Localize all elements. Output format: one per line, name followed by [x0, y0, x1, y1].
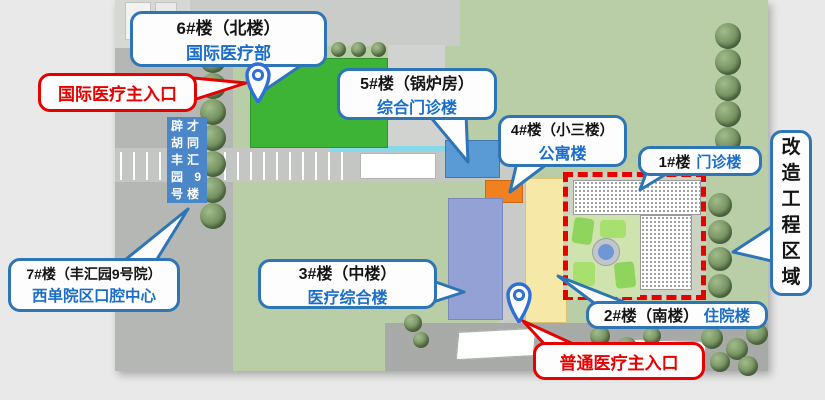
- building-1-outpatient-hatched: [573, 180, 701, 215]
- building-2-number: 2#楼（南楼）: [604, 304, 699, 326]
- callout-international-entrance: 国际医疗主入口: [38, 73, 197, 112]
- international-entrance-label: 国际医疗主入口: [58, 80, 177, 105]
- tree-icon: [200, 203, 226, 229]
- building-5-outpatient: [445, 140, 500, 178]
- renovation-char: 区: [781, 239, 800, 265]
- tree-icon: [738, 356, 758, 376]
- tree-icon: [710, 352, 730, 372]
- callout-building-4: 4#楼（小三楼） 公寓楼: [498, 115, 627, 167]
- building-4-number: 4#楼（小三楼）: [511, 119, 614, 140]
- general-entrance-label: 普通医疗主入口: [560, 349, 679, 374]
- parking-structure: [360, 153, 436, 179]
- building-2-name: 住院楼: [704, 304, 751, 326]
- tree-icon: [708, 193, 732, 217]
- address-row: 丰汇: [167, 152, 207, 169]
- tree-icon: [715, 23, 741, 49]
- tree-icon: [371, 42, 386, 57]
- building-1-number: 1#楼: [659, 151, 691, 172]
- tree-icon: [351, 42, 366, 57]
- garden-patch: [573, 262, 595, 286]
- general-entrance-pin-icon: [504, 281, 534, 323]
- tree-icon: [708, 220, 732, 244]
- tree-icon: [701, 327, 723, 349]
- callout-building-7: 7#楼（丰汇园9号院） 西单院区口腔中心: [8, 258, 180, 312]
- callout-general-entrance: 普通医疗主入口: [533, 342, 705, 380]
- campus-site-plan: 6#楼（北楼） 国际医疗部 国际医疗主入口 5#楼（锅炉房） 综合门诊楼 4#楼…: [0, 0, 825, 400]
- tree-icon: [413, 332, 429, 348]
- parking-stripes: [120, 152, 350, 180]
- address-plate: 辟才 胡同 丰汇 园 9 号楼: [167, 117, 207, 203]
- renovation-char: 程: [781, 213, 800, 239]
- tree-icon: [715, 49, 741, 75]
- tree-icon: [715, 101, 741, 127]
- address-row: 园 9: [167, 169, 207, 186]
- address-row: 号楼: [167, 186, 207, 203]
- garden-patch: [571, 217, 594, 246]
- callout-building-3: 3#楼（中楼） 医疗综合楼: [258, 259, 437, 309]
- building-hatched-east: [640, 215, 692, 290]
- building-3-number: 3#楼（中楼）: [299, 260, 397, 284]
- tree-icon: [715, 75, 741, 101]
- courtyard-garden: [568, 215, 640, 297]
- building-3-name: 医疗综合楼: [307, 284, 387, 308]
- building-6-number: 6#楼（北楼）: [177, 14, 281, 39]
- building-white-south-1: [456, 328, 536, 360]
- callout-renovation-zone: 改 造 工 程 区 域: [770, 130, 812, 296]
- building-3-medical: [448, 198, 503, 320]
- building-5-name: 综合门诊楼: [377, 94, 457, 118]
- garden-patch: [600, 220, 626, 238]
- tree-icon: [708, 247, 732, 271]
- building-1-name: 门诊楼: [696, 151, 741, 172]
- renovation-char: 改: [781, 135, 800, 161]
- tree-icon: [331, 42, 346, 57]
- address-row: 胡同: [167, 135, 207, 152]
- renovation-char: 工: [781, 187, 800, 213]
- garden-pond-water: [598, 244, 614, 260]
- callout-building-5: 5#楼（锅炉房） 综合门诊楼: [337, 68, 497, 120]
- callout-building-6: 6#楼（北楼） 国际医疗部: [130, 11, 327, 67]
- tree-icon: [708, 274, 732, 298]
- renovation-char: 造: [781, 161, 800, 187]
- callout-building-1: 1#楼 门诊楼: [638, 146, 762, 176]
- tree-icon: [200, 73, 226, 99]
- building-5-number: 5#楼（锅炉房）: [360, 70, 474, 94]
- international-entrance-pin-icon: [243, 61, 273, 103]
- address-row: 辟才: [167, 118, 207, 135]
- building-4-name: 公寓楼: [538, 140, 586, 164]
- building-7-name: 西单院区口腔中心: [32, 284, 156, 306]
- building-7-number: 7#楼（丰汇园9号院）: [26, 264, 161, 284]
- garden-patch: [614, 261, 637, 289]
- callout-building-2: 2#楼（南楼） 住院楼: [586, 301, 768, 329]
- renovation-char: 域: [781, 265, 800, 291]
- tree-icon: [404, 314, 422, 332]
